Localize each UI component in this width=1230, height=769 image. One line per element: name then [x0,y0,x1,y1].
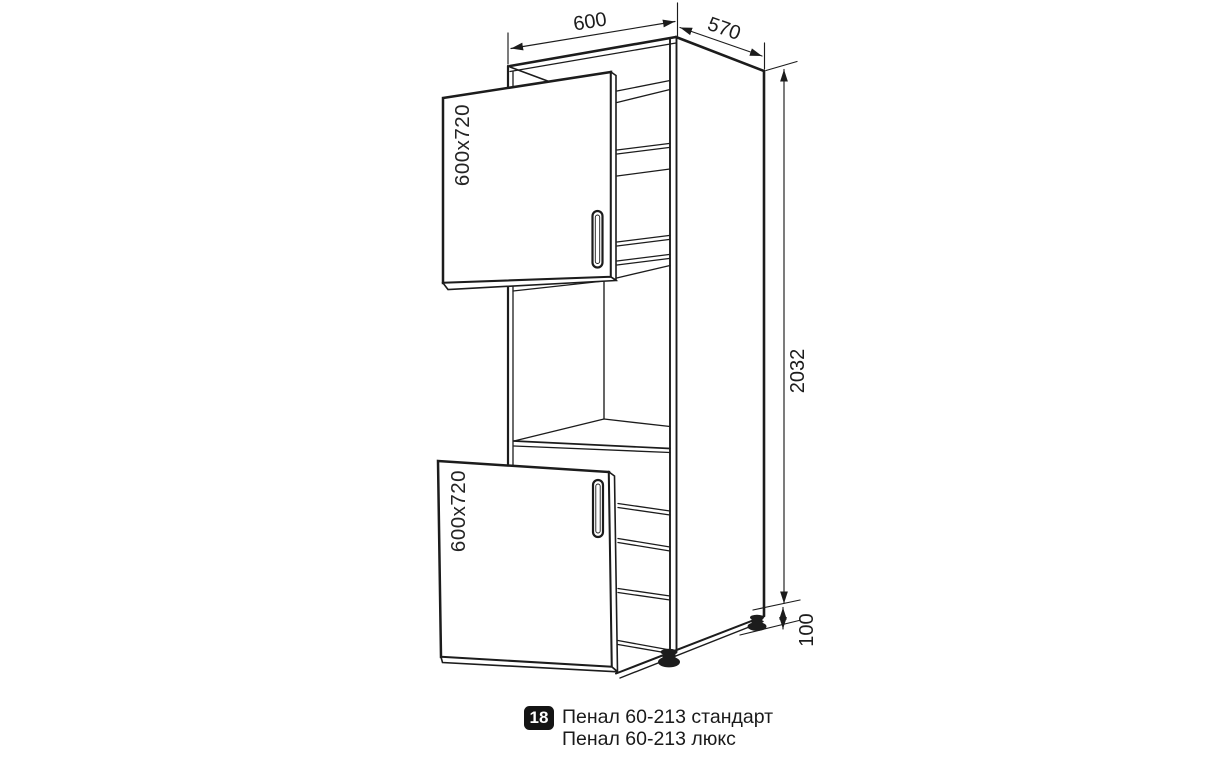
caption-line-standard: Пенал 60-213 стандарт [562,706,773,728]
lower-door-size-label: 600x720 [449,470,470,552]
dimension-width-label: 600 [572,9,608,34]
dimension-height-label: 2032 [788,349,808,394]
upper-door-handle [593,211,603,268]
caption-line-lux: Пенал 60-213 люкс [562,728,773,750]
item-number-badge: 18 [524,706,554,730]
cabinet-line-drawing [0,0,1230,769]
dimension-legs-label: 100 [797,613,817,646]
lower-door-handle [593,480,603,537]
drawing-page: 600 570 2032 100 600x720 600x720 18 Пена… [0,0,1230,769]
upper-door-size-label: 600x720 [453,104,474,186]
caption-text: Пенал 60-213 стандарт Пенал 60-213 люкс [562,706,773,750]
